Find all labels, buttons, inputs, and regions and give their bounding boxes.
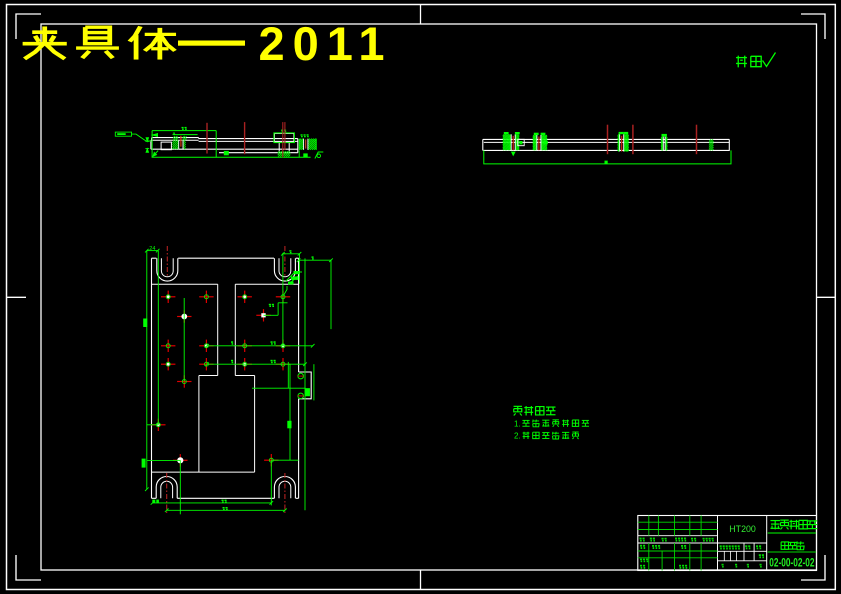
svg-text:02-00-02-02: 02-00-02-02 — [769, 558, 814, 570]
svg-text:1.: 1. — [514, 419, 521, 428]
svg-text:24: 24 — [149, 246, 155, 252]
svg-text:2011: 2011 — [259, 17, 393, 70]
svg-text:HT200: HT200 — [729, 524, 756, 535]
svg-text:2.: 2. — [514, 432, 521, 441]
